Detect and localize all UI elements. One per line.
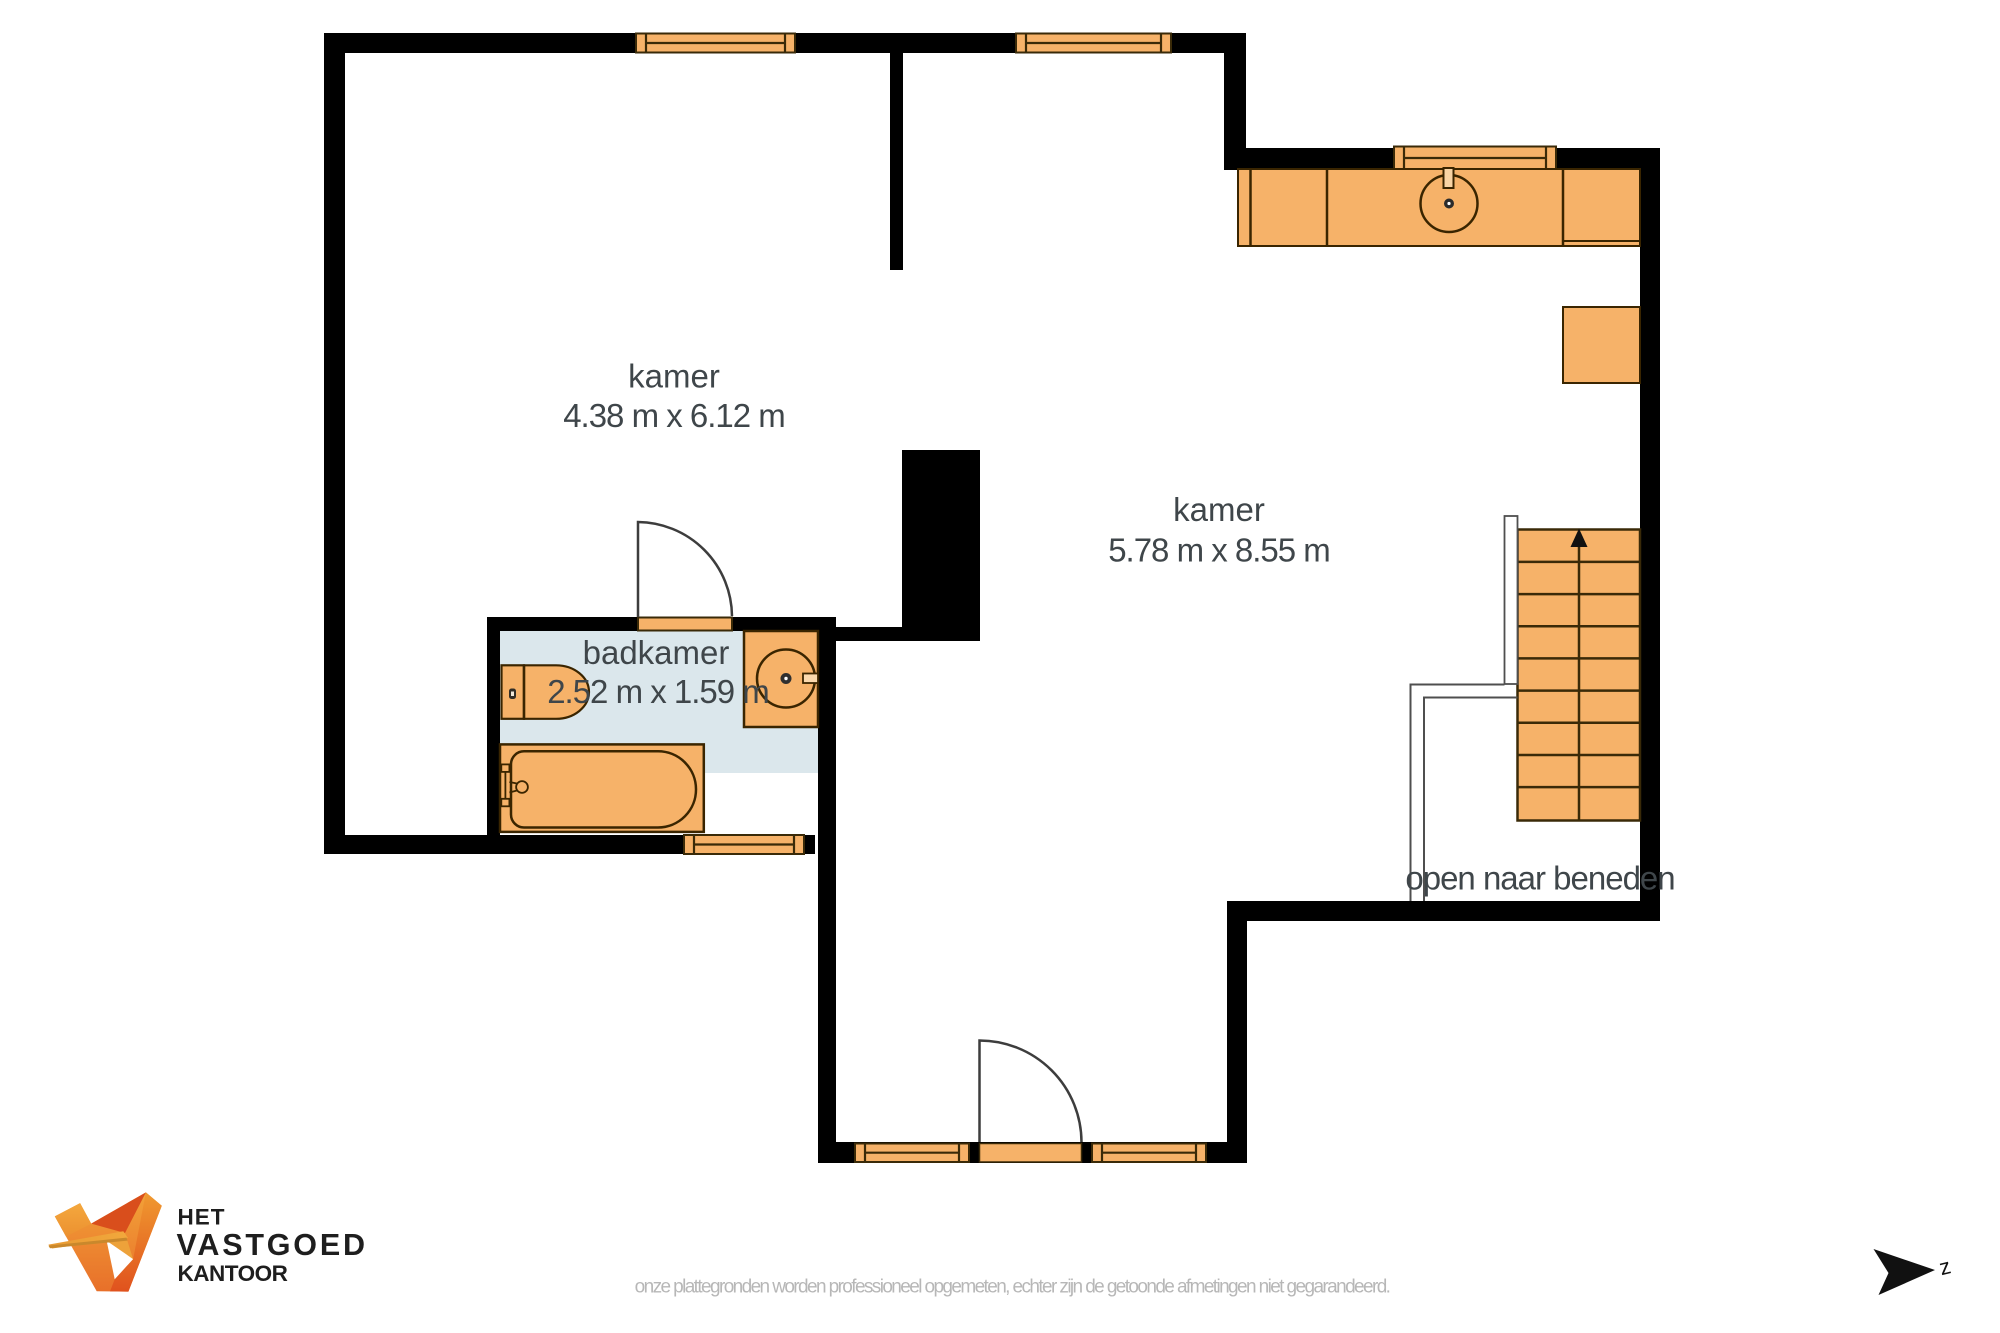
svg-text:onze plattegronden worden prof: onze plattegronden worden professioneel … [635,1277,1390,1298]
svg-text:kamer: kamer [1173,491,1265,528]
svg-text:4.38 m x 6.12 m: 4.38 m x 6.12 m [563,397,785,434]
svg-text:open naar beneden: open naar beneden [1405,860,1674,897]
svg-text:badkamer: badkamer [583,634,730,671]
svg-text:HET: HET [178,1205,226,1230]
svg-text:kamer: kamer [628,358,720,395]
svg-text:5.78 m x 8.55 m: 5.78 m x 8.55 m [1108,532,1330,569]
svg-text:KANTOOR: KANTOOR [178,1261,288,1286]
svg-text:2.52 m x 1.59 m: 2.52 m x 1.59 m [547,673,769,710]
svg-text:VASTGOED: VASTGOED [177,1228,368,1262]
